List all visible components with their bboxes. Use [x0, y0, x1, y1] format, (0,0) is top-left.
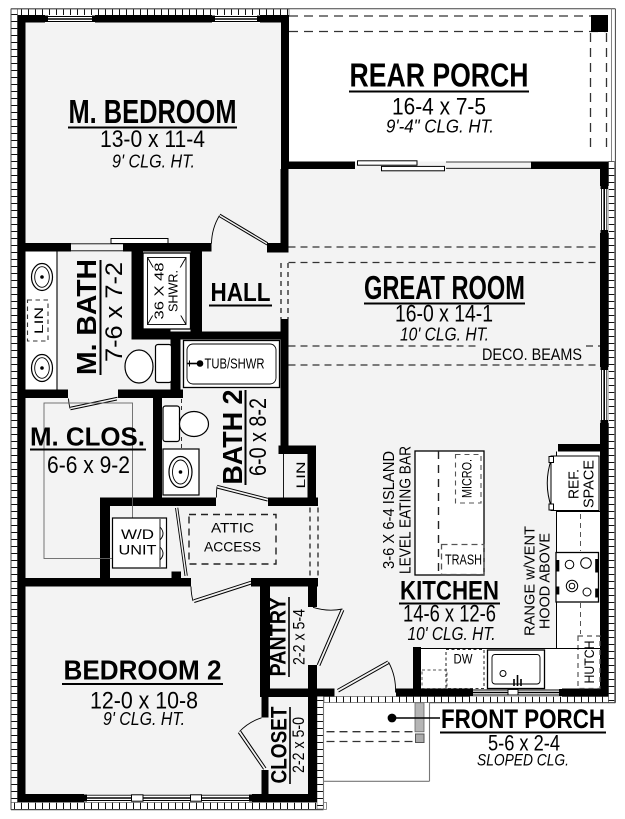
svg-text:LIN: LIN	[32, 307, 46, 334]
svg-text:TRASH: TRASH	[445, 553, 482, 569]
svg-text:RANGE w/VENT: RANGE w/VENT	[523, 526, 539, 636]
svg-text:CLOSET: CLOSET	[267, 706, 292, 783]
svg-text:SPACE: SPACE	[582, 460, 598, 508]
svg-text:FRONT PORCH: FRONT PORCH	[441, 704, 605, 734]
svg-text:UNIT: UNIT	[119, 542, 158, 558]
svg-text:TUB/SHWR: TUB/SHWR	[205, 356, 265, 373]
svg-text:13-0 x 11-4: 13-0 x 11-4	[100, 126, 205, 153]
svg-text:HUTCH: HUTCH	[582, 641, 597, 684]
svg-text:HALL: HALL	[211, 277, 271, 307]
svg-text:36 X 48: 36 X 48	[153, 262, 167, 319]
svg-text:BEDROOM 2: BEDROOM 2	[64, 655, 222, 686]
svg-text:LEVEL EATING BAR: LEVEL EATING BAR	[398, 446, 415, 574]
svg-text:2-2 x 5-0: 2-2 x 5-0	[289, 717, 308, 773]
svg-text:2-2 x 5-4: 2-2 x 5-4	[290, 609, 309, 665]
svg-text:LIN: LIN	[294, 462, 308, 489]
svg-text:9'-4" CLG. HT.: 9'-4" CLG. HT.	[386, 116, 494, 137]
svg-text:3-6 X 6-4 ISLAND: 3-6 X 6-4 ISLAND	[381, 451, 398, 569]
svg-text:10' CLG. HT.: 10' CLG. HT.	[400, 324, 489, 345]
svg-text:PANTRY: PANTRY	[266, 597, 291, 676]
svg-text:10' CLG. HT.: 10' CLG. HT.	[408, 623, 496, 644]
svg-text:MICRO.: MICRO.	[460, 459, 475, 498]
svg-text:W/D: W/D	[121, 526, 154, 542]
svg-text:6-0 x 8-2: 6-0 x 8-2	[245, 398, 272, 476]
svg-text:DW: DW	[454, 651, 474, 667]
svg-text:REAR PORCH: REAR PORCH	[350, 57, 529, 94]
svg-text:HOOD ABOVE: HOOD ABOVE	[538, 533, 554, 629]
svg-text:ACCESS: ACCESS	[204, 539, 261, 555]
svg-text:9' CLG. HT.: 9' CLG. HT.	[112, 151, 195, 172]
svg-text:M. BEDROOM: M. BEDROOM	[69, 93, 237, 130]
svg-text:ATTIC: ATTIC	[211, 520, 254, 536]
svg-text:M. CLOS.: M. CLOS.	[30, 422, 145, 452]
svg-text:7-6 x 7-2: 7-6 x 7-2	[101, 262, 128, 362]
svg-text:DECO. BEAMS: DECO. BEAMS	[482, 345, 582, 364]
svg-text:REF.: REF.	[567, 469, 583, 499]
svg-text:9' CLG. HT.: 9' CLG. HT.	[103, 708, 185, 729]
svg-text:BATH 2: BATH 2	[217, 390, 248, 485]
svg-text:SHWR.: SHWR.	[167, 270, 181, 312]
svg-text:M. BATH: M. BATH	[71, 259, 102, 375]
svg-text:SLOPED CLG.: SLOPED CLG.	[477, 751, 569, 770]
svg-text:6-6 x 9-2: 6-6 x 9-2	[47, 452, 130, 479]
